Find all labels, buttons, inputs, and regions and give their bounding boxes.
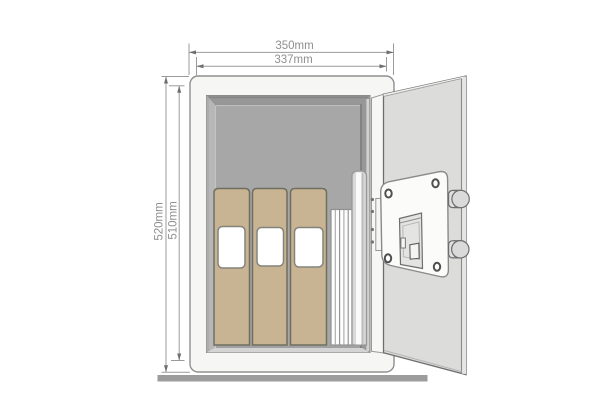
svg-text:510mm: 510mm [167, 201, 179, 239]
svg-text:520mm: 520mm [153, 202, 165, 240]
svg-text:350mm: 350mm [275, 40, 313, 52]
svg-text:337mm: 337mm [274, 54, 312, 66]
